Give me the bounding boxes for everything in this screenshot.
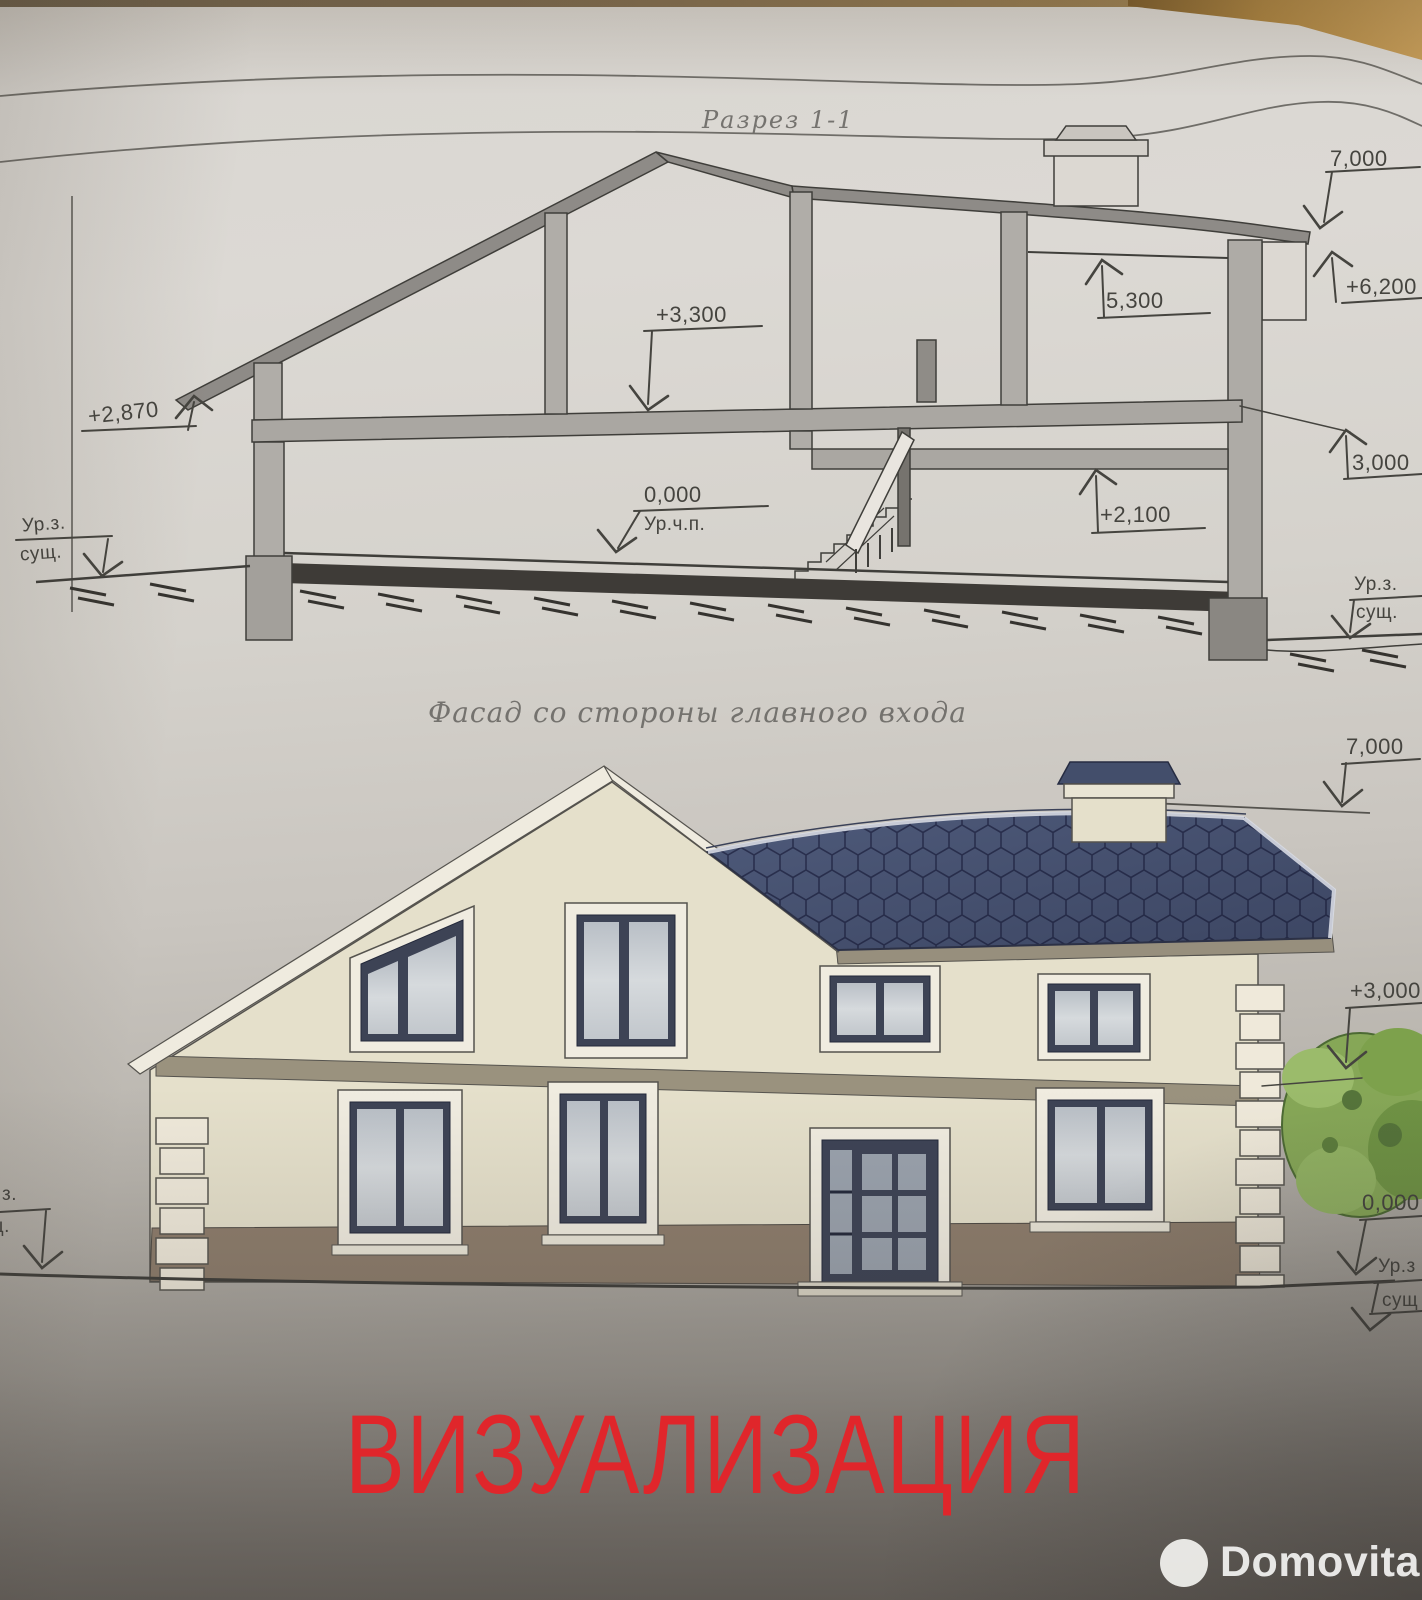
entrance-door — [798, 1128, 962, 1296]
visualization-stamp: ВИЗУАЛИЗАЦИЯ — [345, 1396, 1087, 1514]
right-eave-soffit — [1262, 242, 1306, 320]
first-floor-window-1 — [332, 1090, 468, 1255]
section-structure — [246, 192, 1267, 660]
photo-of-blueprint: Разрез 1-1 7,000 +6,200 +3,300 5,300 +2,… — [0, 0, 1422, 1600]
dim-section-wall-right: 3,000 — [1352, 450, 1410, 476]
dim-section-upper-slab: +3,300 — [656, 302, 727, 328]
upper-window-right — [1038, 974, 1150, 1060]
dim-section-floor-zero: 0,000 — [644, 482, 702, 508]
dim-facade-ground-right-existing: сущ — [1382, 1290, 1418, 1312]
section-roof — [176, 152, 1310, 410]
first-floor-window-2 — [542, 1082, 664, 1245]
domovita-logo-circle-icon — [1160, 1539, 1208, 1587]
gable-window — [565, 903, 687, 1058]
dim-section-ground-left-existing: сущ. — [19, 542, 62, 567]
section-chimney — [1044, 126, 1148, 206]
facade-chimney — [1058, 762, 1180, 842]
dim-section-room-ceiling-right: +2,100 — [1100, 502, 1171, 528]
watermark-brand: Domovita — [1220, 1538, 1420, 1587]
dim-section-ground-right-level: Ур.з. — [1354, 574, 1398, 596]
dim-facade-ground-left-existing: щ. — [0, 1216, 10, 1238]
upper-window-left — [820, 966, 940, 1052]
dim-facade-second-floor: +3,000 — [1350, 978, 1421, 1004]
dim-facade-floor-zero: 0,000 — [1362, 1190, 1420, 1216]
dim-section-roof-top: 7,000 — [1330, 146, 1388, 172]
dim-facade-roof-top: 7,000 — [1346, 734, 1404, 760]
first-floor-window-3 — [1030, 1088, 1170, 1232]
dim-section-ground-left-level: Ур.з. — [21, 513, 66, 538]
facade-drawing — [0, 759, 1422, 1330]
page-frame — [0, 56, 1422, 612]
section-title: Разрез 1-1 — [702, 106, 854, 134]
facade-title: Фасад со стороны главного входа — [428, 696, 967, 729]
foundation-band — [250, 562, 1240, 612]
dim-facade-ground-right-level: Ур.з — [1378, 1256, 1416, 1278]
dim-facade-ground-left-level: з. — [2, 1184, 17, 1206]
dim-section-attic-ceiling: 5,300 — [1106, 288, 1164, 314]
section-drawing — [16, 126, 1422, 671]
dim-section-floor-zero-note: Ур.ч.п. — [644, 514, 705, 536]
blueprint-drawing — [0, 0, 1422, 1600]
watermark: Domovita — [1160, 1538, 1420, 1587]
tree — [1282, 1028, 1422, 1217]
dim-section-eaves-right: +6,200 — [1346, 274, 1417, 300]
dim-section-ground-right-existing: сущ. — [1356, 602, 1398, 624]
